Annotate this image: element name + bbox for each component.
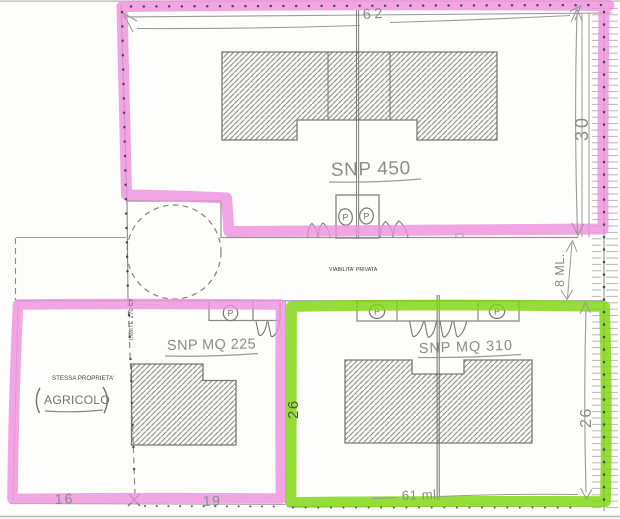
svg-text:AGRICOLO: AGRICOLO: [44, 393, 110, 407]
svg-text:19: 19: [203, 492, 222, 509]
svg-text:8 ML.: 8 ML.: [553, 253, 567, 287]
svg-text:SNP 450: SNP 450: [331, 158, 411, 181]
svg-text:30: 30: [572, 115, 592, 141]
svg-text:16: 16: [55, 490, 75, 507]
svg-text:STESSA PROPRIETA': STESSA PROPRIETA': [52, 375, 114, 382]
svg-text:SNP MQ 310: SNP MQ 310: [419, 338, 514, 357]
svg-text:26: 26: [285, 399, 302, 419]
svg-text:P: P: [228, 308, 234, 318]
svg-text:P: P: [364, 211, 370, 221]
svg-text:P: P: [343, 212, 349, 222]
svg-text:SNP MQ 225: SNP MQ 225: [167, 336, 256, 354]
svg-text:61 ml: 61 ml: [402, 487, 437, 503]
svg-text:62: 62: [362, 6, 386, 23]
svg-text:LIMITE 270 CT: LIMITE 270 CT: [129, 298, 135, 340]
svg-text:26: 26: [578, 407, 595, 428]
svg-text:VIABILITA' PRIVATA: VIABILITA' PRIVATA: [329, 267, 378, 273]
